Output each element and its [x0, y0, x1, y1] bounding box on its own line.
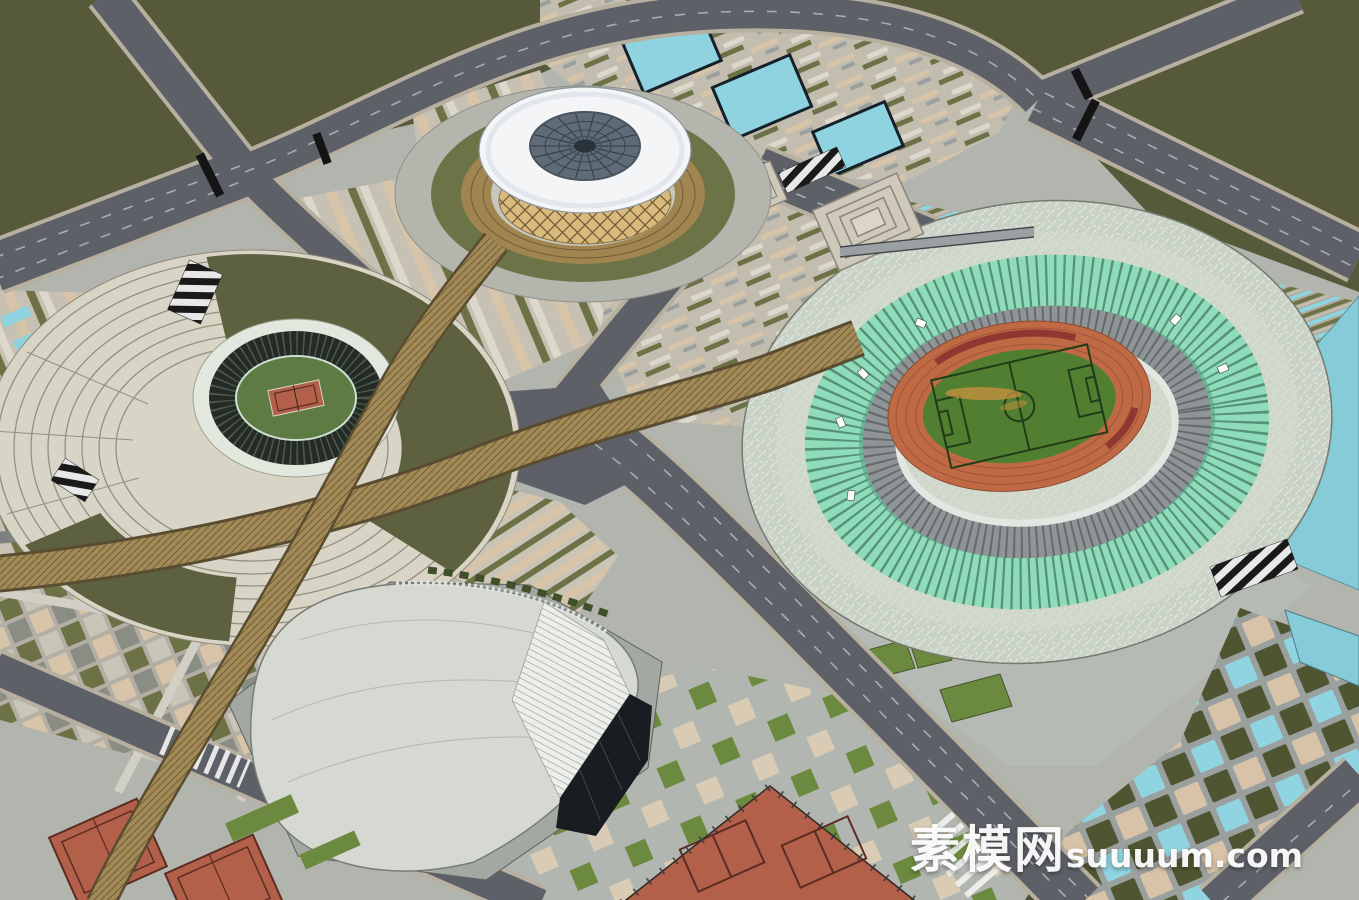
render-canvas: 素模网suuuum.com — [0, 0, 1359, 900]
skylight-hub — [574, 140, 596, 153]
masterplan-render — [0, 0, 1359, 900]
round-gymnasium — [395, 86, 771, 302]
